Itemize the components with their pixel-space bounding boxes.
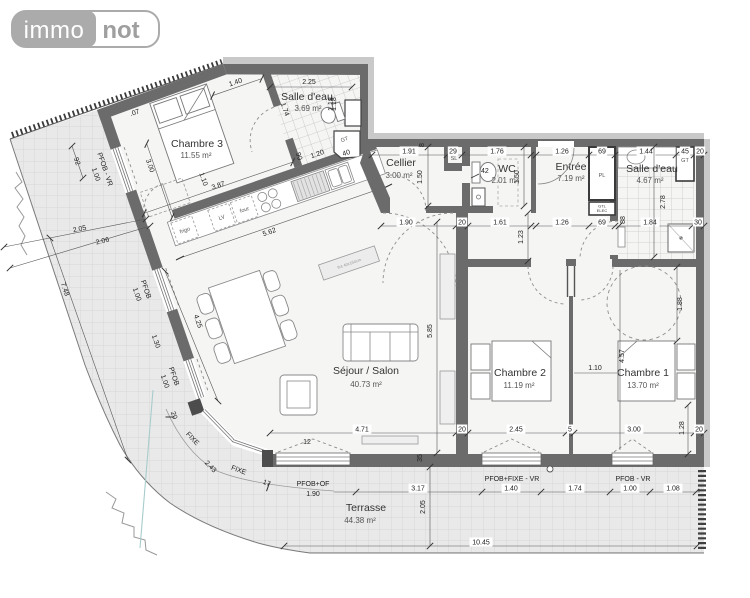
svg-text:Chambre 3: Chambre 3: [171, 138, 223, 150]
svg-text:69: 69: [598, 149, 606, 156]
svg-text:Chambre 1: Chambre 1: [617, 367, 669, 379]
svg-text:1.74: 1.74: [568, 486, 582, 493]
svg-text:1.50: 1.50: [514, 170, 521, 184]
svg-text:42: 42: [481, 168, 489, 175]
svg-text:35: 35: [417, 454, 424, 462]
svg-text:2.78: 2.78: [660, 195, 667, 209]
svg-text:1.90: 1.90: [306, 491, 320, 498]
svg-text:1.76: 1.76: [490, 149, 504, 156]
svg-text:2.05: 2.05: [420, 500, 427, 514]
svg-text:1.40: 1.40: [504, 486, 518, 493]
svg-text:PL: PL: [599, 173, 606, 179]
svg-text:not: not: [102, 17, 139, 44]
svg-text:20: 20: [458, 427, 466, 434]
svg-text:2.45: 2.45: [509, 427, 523, 434]
svg-text:1.28: 1.28: [679, 421, 686, 435]
svg-text:1.23: 1.23: [518, 230, 525, 244]
svg-text:1.26: 1.26: [555, 149, 569, 156]
svg-text:8: 8: [419, 143, 426, 147]
svg-text:1.10: 1.10: [588, 365, 602, 372]
svg-text:3.17: 3.17: [411, 486, 425, 493]
svg-text:5.85: 5.85: [427, 324, 434, 338]
svg-text:3.00: 3.00: [627, 427, 641, 434]
svg-text:Chambre 2: Chambre 2: [494, 367, 546, 379]
svg-text:11.55 m²: 11.55 m²: [181, 151, 212, 160]
svg-text:44.38 m²: 44.38 m²: [344, 516, 376, 525]
svg-text:1.18: 1.18: [331, 97, 338, 111]
svg-text:Salle d'eau: Salle d'eau: [626, 163, 678, 175]
svg-text:1.08: 1.08: [666, 486, 680, 493]
svg-text:13.70 m²: 13.70 m²: [627, 381, 659, 390]
svg-text:5: 5: [568, 427, 572, 434]
svg-text:69: 69: [598, 220, 606, 227]
svg-text:20: 20: [695, 427, 703, 434]
svg-text:PFOB - VR: PFOB - VR: [615, 476, 650, 483]
svg-text:20: 20: [696, 149, 704, 156]
svg-text:1.91: 1.91: [402, 149, 416, 156]
svg-text:Salle d'eau: Salle d'eau: [281, 91, 333, 103]
svg-text:SL: SL: [451, 156, 458, 162]
svg-text:1.90: 1.90: [399, 220, 413, 227]
svg-text:10.45: 10.45: [472, 540, 490, 547]
svg-text:1.00: 1.00: [623, 486, 637, 493]
svg-text:40.73 m²: 40.73 m²: [350, 380, 382, 389]
svg-text:PFOB+OF: PFOB+OF: [297, 481, 330, 488]
svg-text:3.69 m²: 3.69 m²: [294, 104, 321, 113]
svg-text:30: 30: [694, 220, 702, 227]
svg-text:PFOB+FIXE - VR: PFOB+FIXE - VR: [485, 476, 540, 483]
svg-text:12: 12: [303, 439, 311, 446]
svg-text:4.57: 4.57: [619, 349, 626, 363]
svg-text:3.00 m²: 3.00 m²: [385, 171, 412, 180]
svg-text:88: 88: [620, 216, 627, 224]
svg-text:20: 20: [458, 220, 466, 227]
svg-text:Cellier: Cellier: [386, 157, 416, 169]
svg-text:ELEC: ELEC: [597, 208, 608, 213]
svg-text:1.26: 1.26: [555, 220, 569, 227]
svg-text:1.84: 1.84: [643, 220, 657, 227]
svg-text:45: 45: [681, 149, 689, 156]
svg-text:4.67 m²: 4.67 m²: [636, 176, 663, 185]
svg-text:1.88: 1.88: [677, 297, 684, 311]
svg-text:1.61: 1.61: [493, 220, 507, 227]
svg-text:Terrasse: Terrasse: [346, 502, 386, 514]
svg-text:1.50: 1.50: [417, 170, 424, 184]
svg-text:11.19 m²: 11.19 m²: [504, 381, 535, 390]
svg-text:29: 29: [449, 149, 457, 156]
svg-text:immo: immo: [24, 17, 85, 44]
svg-text:4.71: 4.71: [355, 427, 369, 434]
svg-text:Séjour / Salon: Séjour / Salon: [333, 365, 399, 377]
svg-text:2.25: 2.25: [302, 79, 316, 86]
svg-text:GT: GT: [681, 158, 689, 164]
